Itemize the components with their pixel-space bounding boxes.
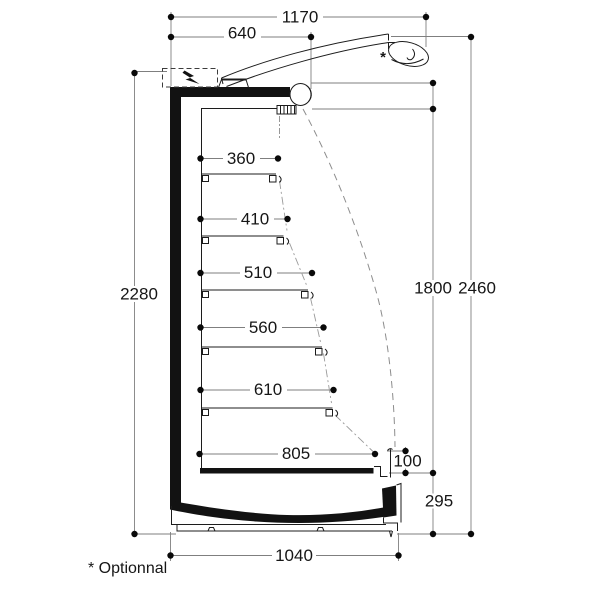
optional-asterisk-marker: * <box>380 49 386 66</box>
dim-overall-depth: 1170 <box>282 8 319 27</box>
dim-shelf-560: 560 <box>249 318 277 337</box>
top-canopy-bar <box>170 87 290 97</box>
front-bumper <box>382 486 397 518</box>
section-drawing: 1170 640 2280 1800 2460 100 295 1040 360… <box>0 0 600 600</box>
dim-overall-height: 2460 <box>458 279 496 298</box>
dim-shelf-510: 510 <box>244 263 272 282</box>
dim-shelf-360: 360 <box>227 149 255 168</box>
dim-opening-height: 1800 <box>414 279 452 298</box>
dim-shelf-410: 410 <box>241 210 269 229</box>
bottom-shelf <box>200 468 374 474</box>
dim-canopy-depth: 640 <box>228 24 256 43</box>
technical-drawing-page: 1170 640 2280 1800 2460 100 295 1040 360… <box>0 0 600 600</box>
optional-footnote: * Optionnal <box>88 560 167 577</box>
back-wall <box>170 87 181 506</box>
dim-sill-height: 100 <box>393 452 421 471</box>
dim-back-height: 2280 <box>120 285 158 304</box>
dim-shelf-610: 610 <box>254 380 282 399</box>
dim-base-height: 295 <box>425 492 453 511</box>
dim-base-depth: 1040 <box>275 546 313 565</box>
dim-shelf-805: 805 <box>282 444 310 463</box>
